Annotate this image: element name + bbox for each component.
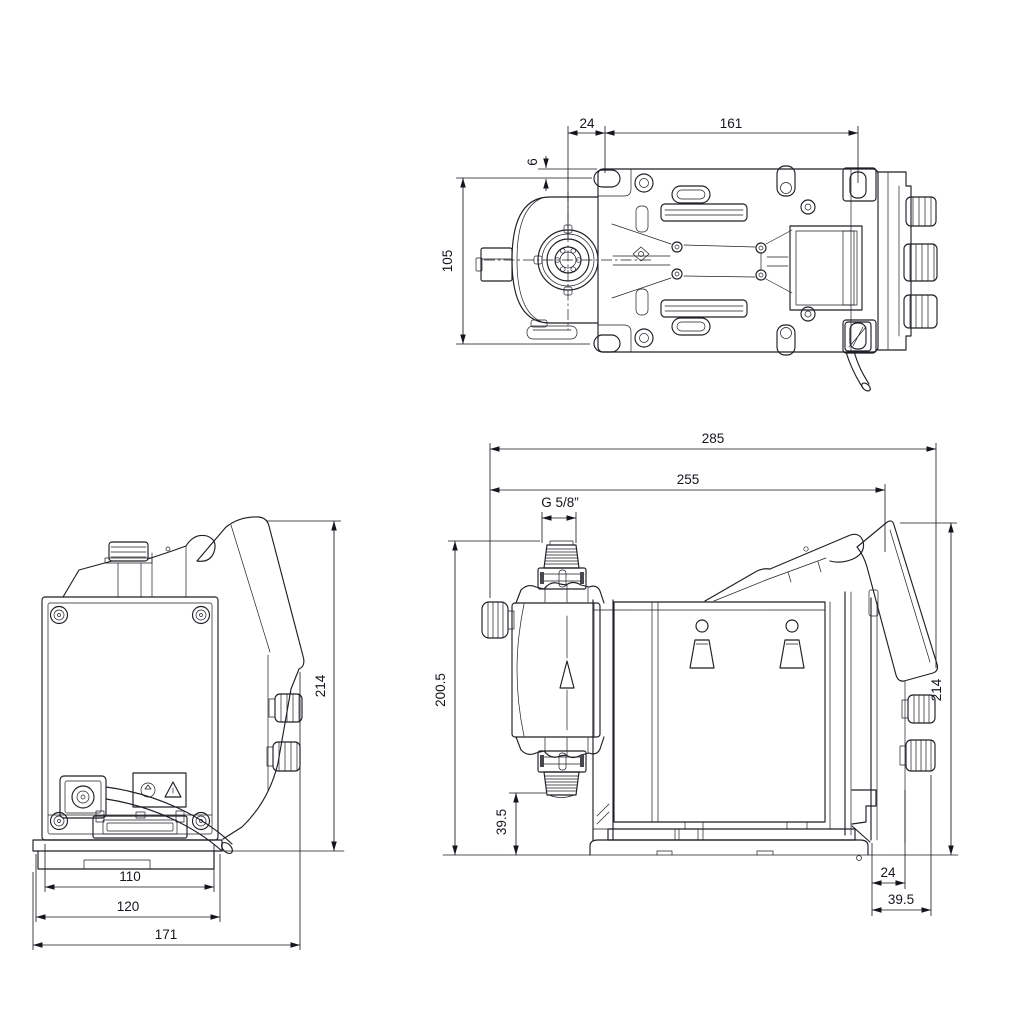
screw-icon [193, 607, 210, 624]
dim-label-rear-120: 120 [117, 899, 140, 914]
drawing-canvas: 24 161 6 105 [0, 0, 1024, 1024]
rear-view: 214 110 120 171 [33, 517, 344, 950]
dimensions-rear: 214 110 120 171 [33, 521, 341, 950]
mounting-foot-rear [33, 811, 344, 869]
dim-label-rear-214: 214 [313, 674, 328, 697]
dim-label-top-105: 105 [440, 250, 455, 273]
pump-head [482, 541, 613, 840]
dim-label-top-161: 161 [720, 116, 743, 131]
control-housing-side [705, 521, 938, 843]
base-side [590, 829, 868, 855]
knob-icon [904, 244, 937, 281]
dim-label-side-285: 285 [702, 431, 725, 446]
dim-label-top-24: 24 [579, 116, 595, 131]
shaft-connector [481, 248, 512, 281]
dim-label-side-39-5-lower: 39.5 [888, 892, 914, 907]
dim-label-side-255: 255 [677, 472, 700, 487]
knob-icon [904, 295, 937, 328]
control-housing-rear [197, 517, 304, 839]
union-nut-top [538, 568, 586, 589]
control-end-top [845, 172, 937, 393]
knob-icon [267, 742, 300, 771]
dim-label-rear-171: 171 [155, 927, 178, 942]
motor-housing-top [476, 197, 598, 339]
dim-label-side-200-5: 200.5 [433, 673, 448, 707]
power-cable [846, 351, 872, 393]
technical-drawing: 24 161 6 105 [0, 0, 1024, 1024]
valve-top [484, 192, 654, 330]
side-view: 285 255 G 5/8” 200.5 39.5 214 24 39.5 [433, 431, 958, 916]
dim-label-rear-110: 110 [119, 869, 141, 884]
vent-valve-knob [482, 602, 514, 638]
dim-label-side-thread: G 5/8” [541, 495, 579, 510]
screw-icon [51, 607, 68, 624]
union-nut-bottom [538, 751, 586, 772]
dim-label-top-6: 6 [525, 158, 540, 166]
top-view: 24 161 6 105 [440, 116, 937, 393]
pump-body-side [614, 592, 877, 861]
top-housing-rear [63, 535, 215, 597]
warning-label [133, 773, 186, 807]
flow-arrow-icon [560, 661, 574, 688]
dim-label-side-24: 24 [880, 865, 896, 880]
base-plate-top [594, 166, 878, 355]
threaded-connection-top [544, 545, 579, 568]
threaded-connection-bottom [544, 772, 579, 795]
dim-label-side-39-5-upper: 39.5 [494, 809, 509, 835]
dim-label-side-214: 214 [929, 678, 944, 701]
